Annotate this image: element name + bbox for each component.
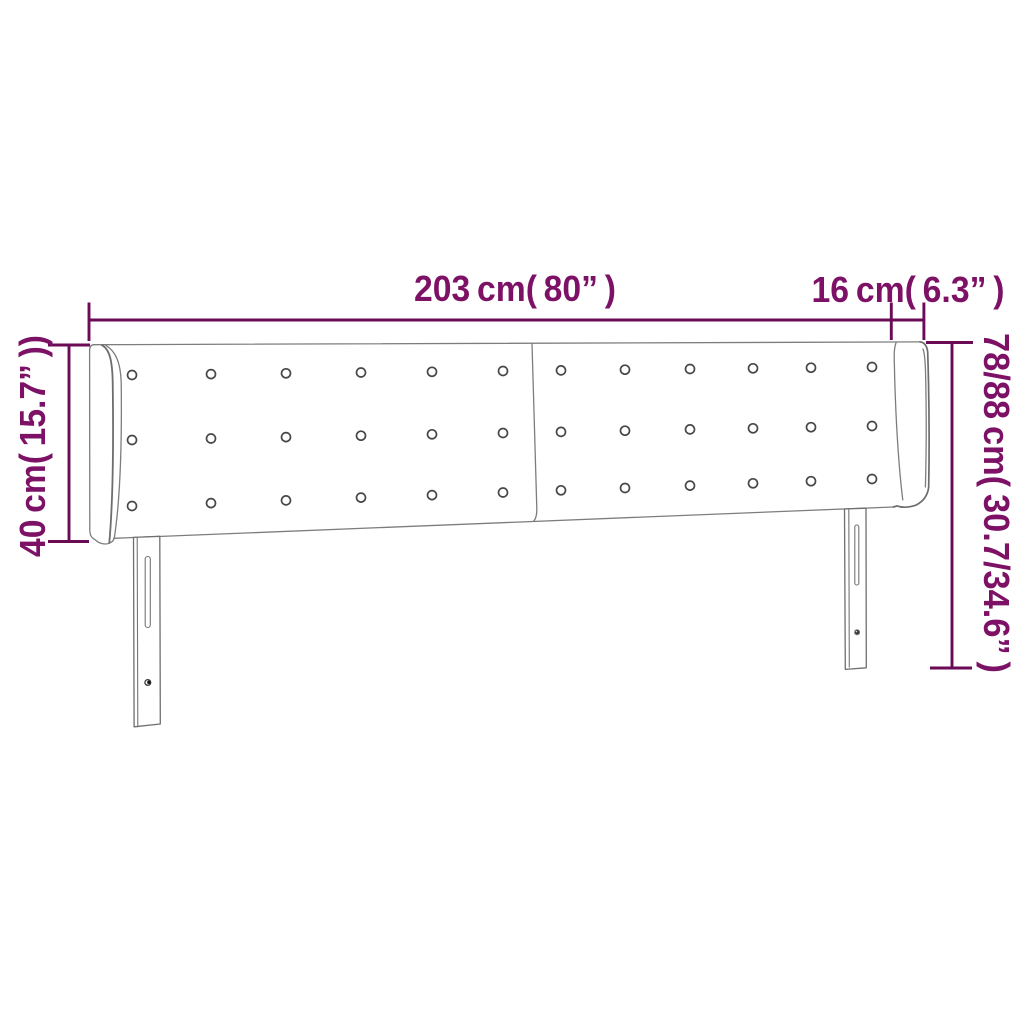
svg-text:203 cm( 80” ): 203 cm( 80” ) xyxy=(414,268,616,309)
svg-text:16 cm( 6.3” ): 16 cm( 6.3” ) xyxy=(812,269,1005,310)
svg-text:78/88 cm( 30.7/34.6” ): 78/88 cm( 30.7/34.6” ) xyxy=(976,333,1017,673)
svg-text:40 cm( 15.7” )): 40 cm( 15.7” )) xyxy=(12,335,53,557)
